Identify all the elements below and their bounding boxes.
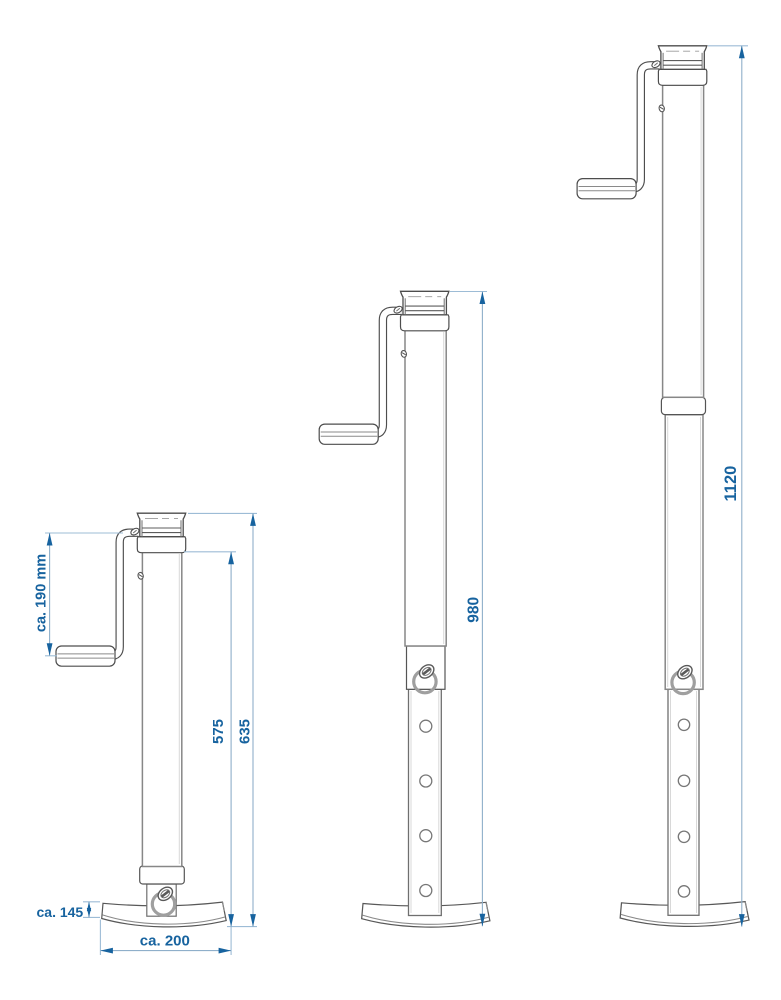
svg-text:ca. 190 mm: ca. 190 mm [33,554,49,632]
svg-text:635: 635 [236,719,253,744]
svg-text:1120: 1120 [722,466,740,502]
svg-text:ca. 200: ca. 200 [140,933,190,950]
svg-text:575: 575 [210,719,227,744]
svg-text:980: 980 [465,597,482,623]
svg-text:ca. 145: ca. 145 [37,904,84,920]
